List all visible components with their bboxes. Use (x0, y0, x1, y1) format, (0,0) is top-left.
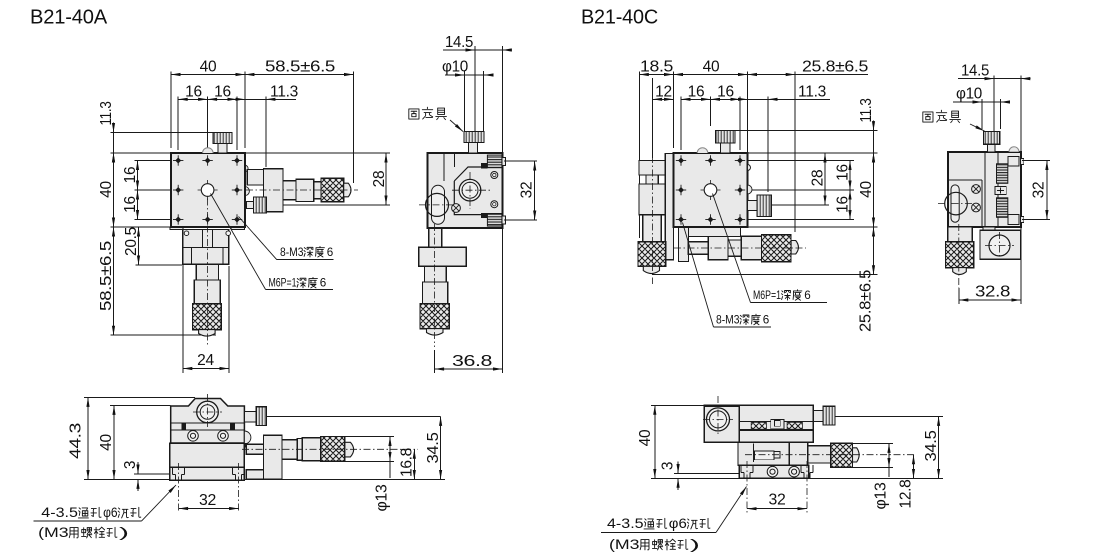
svg-text:14.5: 14.5 (445, 34, 473, 51)
svg-text:32: 32 (199, 492, 216, 509)
svg-text:28: 28 (371, 171, 388, 188)
svg-text:16: 16 (214, 84, 231, 101)
svg-text:8-M3: 8-M3 (280, 245, 304, 259)
svg-text:18.5: 18.5 (640, 59, 673, 76)
svg-text:3: 3 (122, 461, 139, 469)
svg-text:φ13: φ13 (873, 483, 890, 510)
svg-text:6: 6 (320, 276, 327, 290)
svg-text:16: 16 (688, 84, 705, 101)
svg-text:): ) (119, 525, 129, 540)
svg-text:32: 32 (769, 492, 786, 509)
svg-text:24: 24 (197, 352, 214, 369)
svg-text:44.3: 44.3 (68, 423, 85, 459)
svg-text:16: 16 (185, 84, 202, 101)
svg-text:11.3: 11.3 (798, 84, 826, 101)
svg-text:φ6: φ6 (669, 516, 687, 531)
svg-text:11.3: 11.3 (270, 84, 298, 101)
svg-text:32.8: 32.8 (975, 284, 1010, 301)
svg-text:40: 40 (637, 429, 654, 446)
svg-text:φ10: φ10 (956, 86, 983, 103)
svg-text:25.8±6.5: 25.8±6.5 (858, 270, 875, 332)
svg-text:M6P=1: M6P=1 (753, 288, 781, 302)
svg-text:3: 3 (660, 462, 677, 470)
svg-text:φ6: φ6 (103, 505, 118, 520)
svg-text:40: 40 (703, 59, 720, 76)
svg-text:(M3: (M3 (609, 537, 640, 552)
svg-text:32: 32 (519, 182, 536, 199)
svg-text:28: 28 (810, 170, 827, 187)
svg-text:20.5: 20.5 (123, 227, 140, 256)
svg-text:34.5: 34.5 (923, 431, 940, 462)
svg-text:16: 16 (835, 196, 852, 213)
svg-text:40: 40 (98, 434, 115, 451)
svg-text:8-M3: 8-M3 (716, 313, 740, 327)
svg-text:M6P=1: M6P=1 (269, 276, 297, 290)
svg-text:40: 40 (98, 181, 115, 198)
svg-text:φ10: φ10 (442, 59, 469, 76)
svg-text:14.5: 14.5 (961, 63, 989, 80)
svg-text:B21-40C: B21-40C (581, 6, 658, 29)
svg-text:16.8: 16.8 (399, 448, 416, 477)
svg-text:11.3: 11.3 (98, 102, 115, 126)
svg-text:(M3: (M3 (38, 525, 69, 540)
svg-text:32: 32 (1031, 182, 1048, 199)
svg-text:φ13: φ13 (374, 485, 391, 512)
svg-text:58.5±6.5: 58.5±6.5 (98, 241, 115, 311)
svg-text:36.8: 36.8 (452, 353, 492, 370)
svg-text:6: 6 (763, 313, 770, 327)
svg-text:40: 40 (858, 181, 875, 198)
svg-text:58.5±6.5: 58.5±6.5 (265, 59, 335, 76)
svg-text:34.5: 34.5 (425, 433, 442, 464)
svg-text:16: 16 (717, 84, 734, 101)
svg-text:16: 16 (122, 196, 139, 213)
svg-text:25.8±6.5: 25.8±6.5 (802, 59, 868, 76)
svg-text:11.3: 11.3 (858, 99, 875, 123)
svg-text:6: 6 (804, 288, 811, 302)
svg-text:12.8: 12.8 (898, 480, 915, 509)
svg-text:4-3.5: 4-3.5 (41, 505, 78, 520)
svg-text:16: 16 (122, 167, 139, 184)
svg-text:4-3.5: 4-3.5 (607, 516, 644, 531)
svg-text:12: 12 (655, 84, 672, 101)
svg-text:): ) (690, 537, 700, 552)
svg-text:6: 6 (327, 245, 334, 259)
svg-text:16: 16 (835, 164, 852, 181)
svg-text:B21-40A: B21-40A (30, 6, 108, 29)
svg-text:40: 40 (200, 59, 217, 76)
